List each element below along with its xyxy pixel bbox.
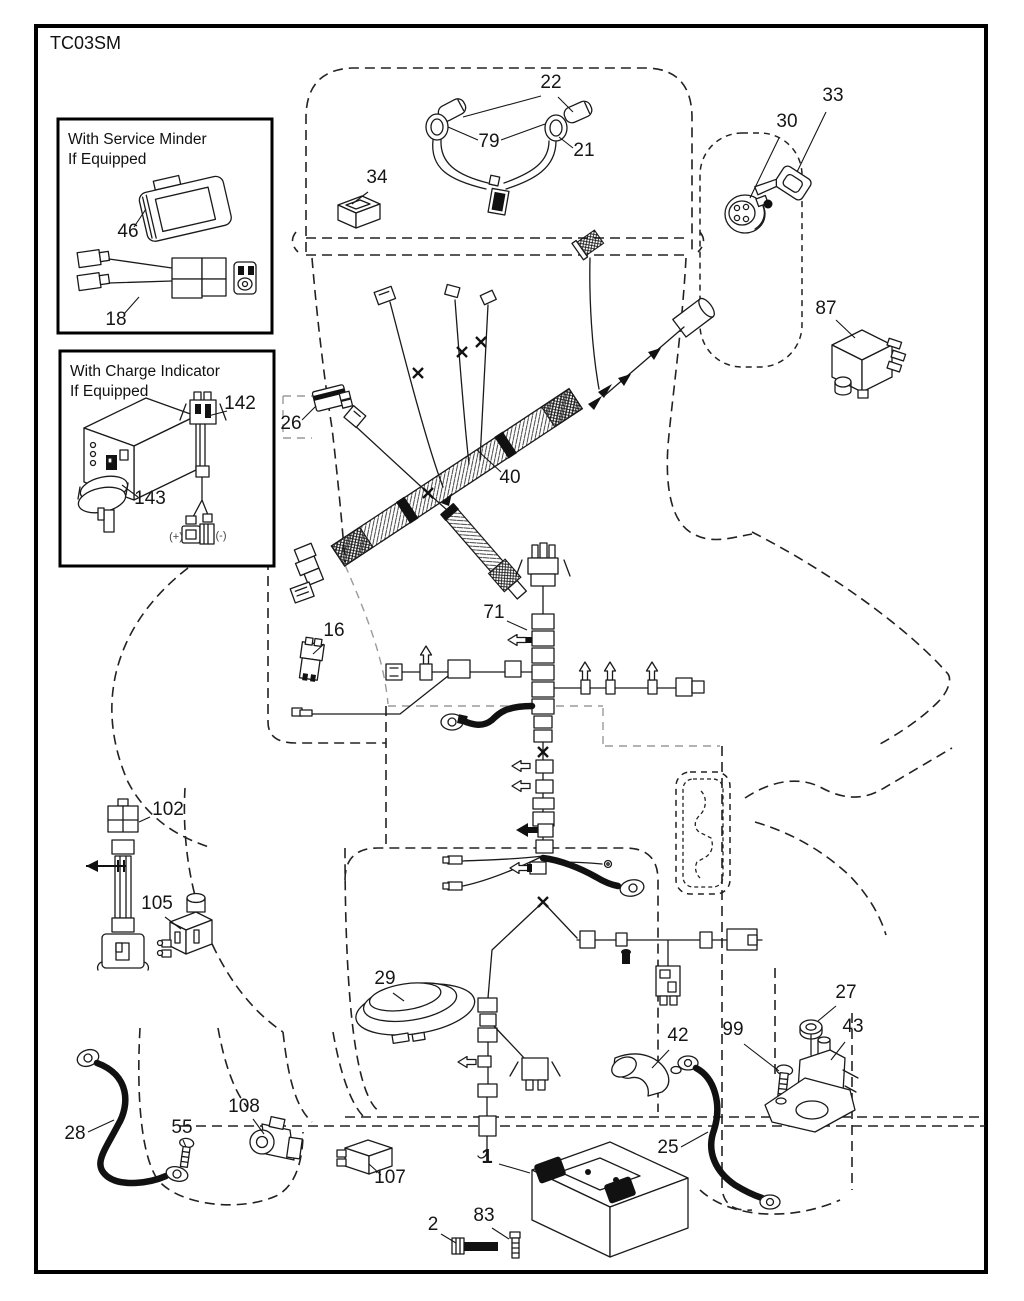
callout-27: 27: [835, 982, 856, 1003]
leader-25: [681, 1132, 708, 1147]
callout-40: 40: [499, 467, 520, 488]
inset2-heading-line1: With Charge Indicator: [70, 363, 220, 380]
callout-21: 21: [573, 140, 594, 161]
callout-99: 99: [722, 1019, 743, 1040]
horn-29: [352, 973, 480, 1049]
inset1-heading-line1: With Service Minder: [68, 131, 207, 148]
ground-cable-28: [75, 1047, 190, 1184]
callout-83: 83: [473, 1205, 494, 1226]
inset-charge-indicator: With Charge Indicator If Equipped: [60, 351, 274, 566]
callout-107: 107: [374, 1167, 406, 1188]
callout-79: 79: [478, 131, 499, 152]
leader-79: [448, 127, 478, 140]
parts-diagram-page: TC03SM: [0, 0, 1024, 1301]
callout-26: 26: [280, 413, 301, 434]
leader-79: [501, 124, 545, 140]
leader-87: [836, 320, 855, 338]
leader-83: [492, 1228, 509, 1239]
starter-motor-108: [250, 1117, 302, 1160]
seat-switch-16: [297, 637, 325, 683]
callout-28: 28: [64, 1123, 85, 1144]
callout-33: 33: [822, 85, 843, 106]
callout-143: 143: [134, 488, 166, 509]
callout-29: 29: [374, 968, 395, 989]
relay-87: [832, 330, 906, 398]
callout-46: 46: [117, 221, 138, 242]
fuse-26: [312, 383, 352, 414]
callout-87: 87: [815, 298, 836, 319]
callout-16: 16: [323, 620, 344, 641]
switch-34: [338, 196, 380, 228]
callout-34: 34: [366, 167, 388, 188]
callout-1: 1: [481, 1146, 492, 1168]
callout-plus: (+): [169, 531, 183, 543]
ignition-switch: [725, 195, 773, 233]
boot-42: [608, 1053, 681, 1096]
inset1-heading-line2: If Equipped: [68, 151, 146, 168]
callout-30: 30: [776, 111, 797, 132]
callout-105: 105: [141, 893, 173, 914]
callout-2: 2: [428, 1214, 439, 1235]
callout-142: 142: [224, 393, 256, 414]
callout-55: 55: [171, 1117, 192, 1138]
callout-minus: (-): [216, 530, 227, 542]
leader-27: [818, 1006, 836, 1021]
callout-18: 18: [105, 309, 126, 330]
leader-99: [744, 1044, 779, 1071]
callout-71: 71: [483, 602, 504, 623]
callout-25: 25: [657, 1137, 678, 1158]
callout-102: 102: [152, 799, 184, 820]
leader-22: [463, 96, 541, 117]
bolt-2: [452, 1238, 498, 1254]
leader-71: [507, 621, 527, 630]
battery-1: [532, 1142, 688, 1257]
leader-102: [139, 817, 150, 822]
bolt-83: [510, 1232, 520, 1258]
callout-22: 22: [540, 72, 561, 93]
leader-33: [797, 112, 826, 172]
leader-28: [88, 1120, 114, 1132]
screw-55: [176, 1138, 194, 1168]
callout-42: 42: [667, 1025, 688, 1046]
main-harness-40: [290, 228, 717, 602]
battery-cable-25: [678, 1056, 780, 1209]
leader-1: [499, 1164, 530, 1173]
fuse-assembly-102: [86, 799, 148, 970]
inset-service-minder: With Service Minder If Equipped: [58, 119, 272, 333]
headlight-harness: [426, 96, 594, 215]
drawing-code: TC03SM: [50, 33, 121, 53]
leader-26: [302, 406, 316, 420]
inset2-heading-line2: If Equipped: [70, 383, 148, 400]
leader-21: [559, 137, 573, 148]
callout-43: 43: [842, 1016, 863, 1037]
callout-108: 108: [228, 1096, 260, 1117]
parts-diagram-svg: TC03SM: [0, 0, 1024, 1301]
